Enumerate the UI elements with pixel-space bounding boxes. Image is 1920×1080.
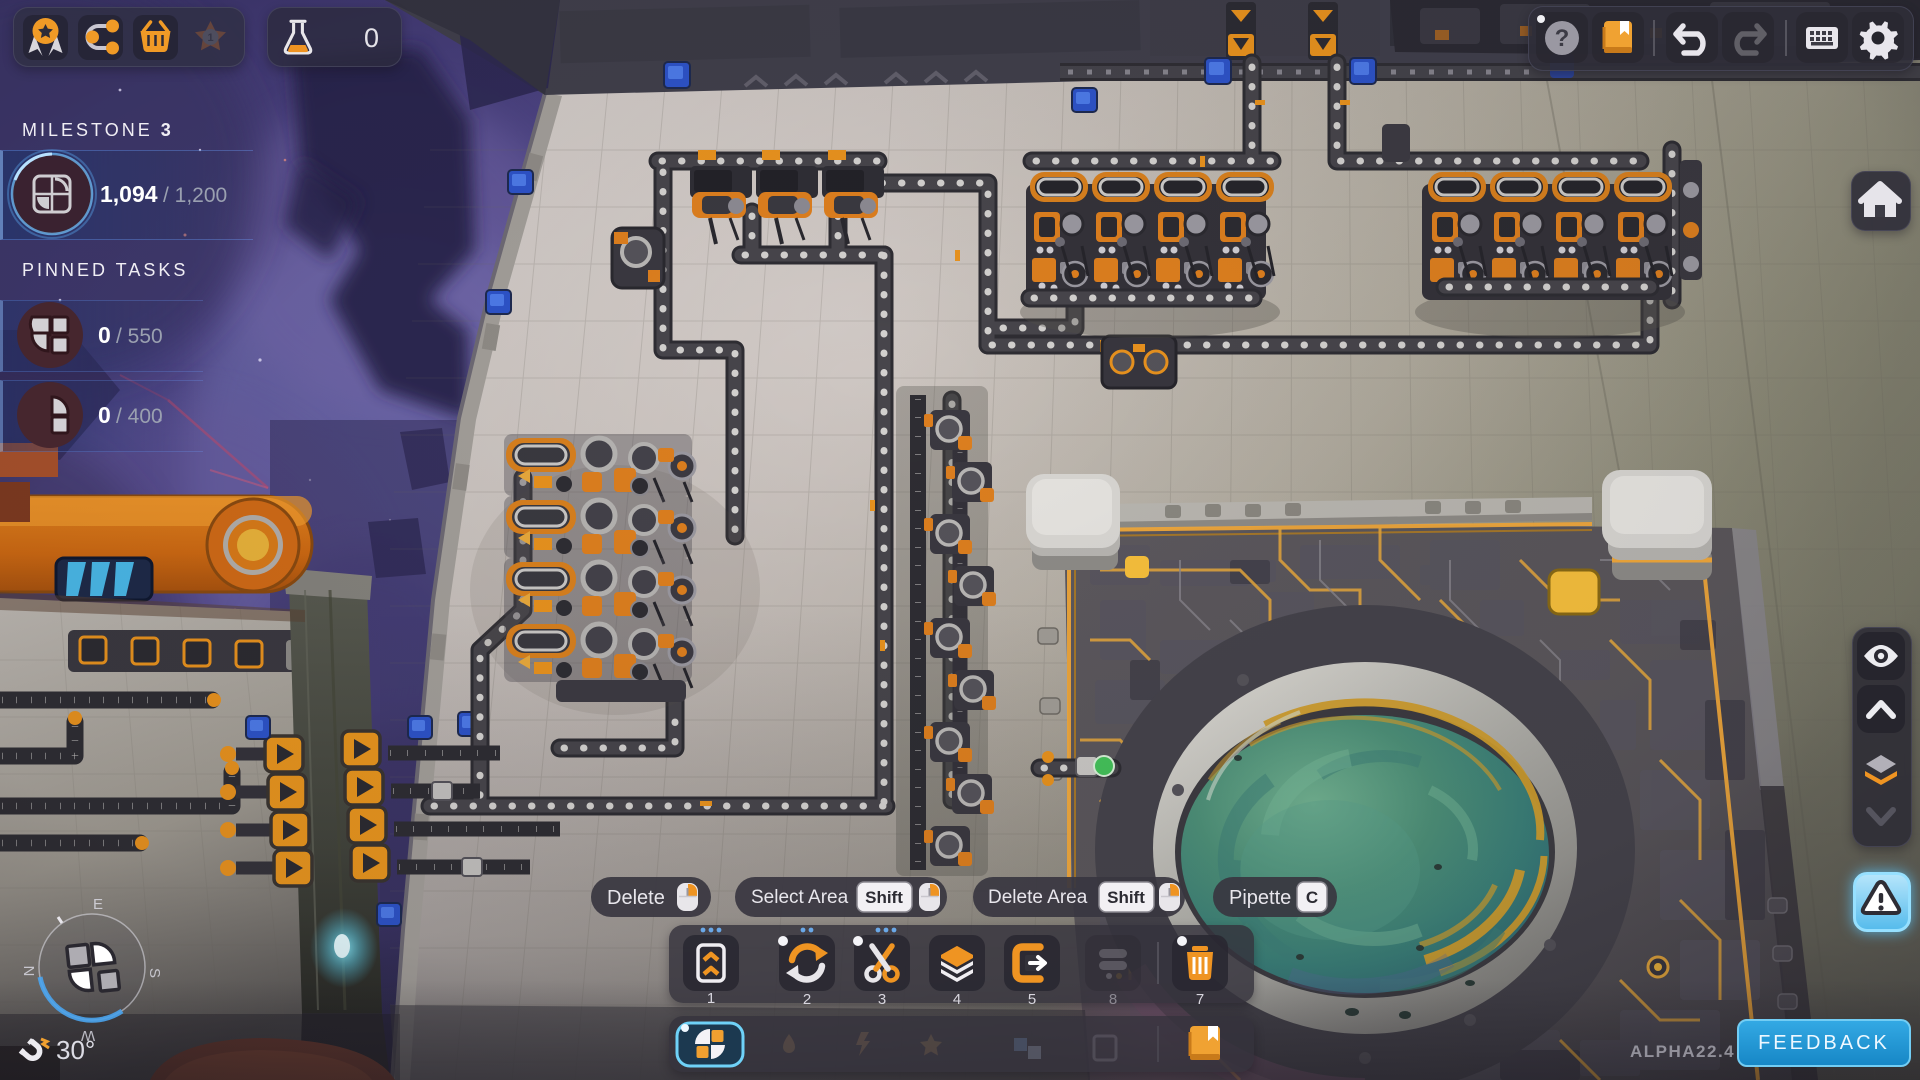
svg-text:1,094: 1,094 (100, 181, 158, 207)
svg-text:?: ? (1555, 25, 1570, 52)
svg-text:5: 5 (1028, 991, 1036, 1008)
svg-text:0: 0 (98, 402, 111, 428)
svg-text:0: 0 (98, 322, 111, 348)
svg-text:Shift: Shift (865, 888, 903, 907)
svg-text:1: 1 (207, 32, 213, 44)
svg-text:/ 400: / 400 (116, 405, 163, 428)
svg-text:30°: 30° (56, 1035, 95, 1065)
svg-text:Select Area: Select Area (751, 887, 849, 908)
svg-text:/ 550: / 550 (116, 325, 163, 348)
svg-text:2: 2 (803, 991, 811, 1008)
svg-text:7: 7 (1196, 991, 1204, 1008)
svg-text:E: E (93, 896, 103, 913)
svg-text:N: N (21, 966, 38, 977)
svg-text:S: S (146, 968, 163, 978)
svg-text:C: C (1306, 888, 1318, 907)
svg-text:Pipette: Pipette (1229, 887, 1291, 909)
svg-text:3: 3 (878, 991, 886, 1008)
svg-text:Delete Area: Delete Area (988, 887, 1088, 908)
svg-text:/ 1,200: / 1,200 (163, 184, 227, 207)
svg-text:8: 8 (1109, 991, 1117, 1008)
svg-text:0: 0 (364, 23, 379, 53)
svg-text:Delete: Delete (607, 887, 665, 909)
svg-text:4: 4 (953, 991, 961, 1008)
svg-text:Shift: Shift (1107, 888, 1145, 907)
svg-text:1: 1 (707, 990, 715, 1007)
